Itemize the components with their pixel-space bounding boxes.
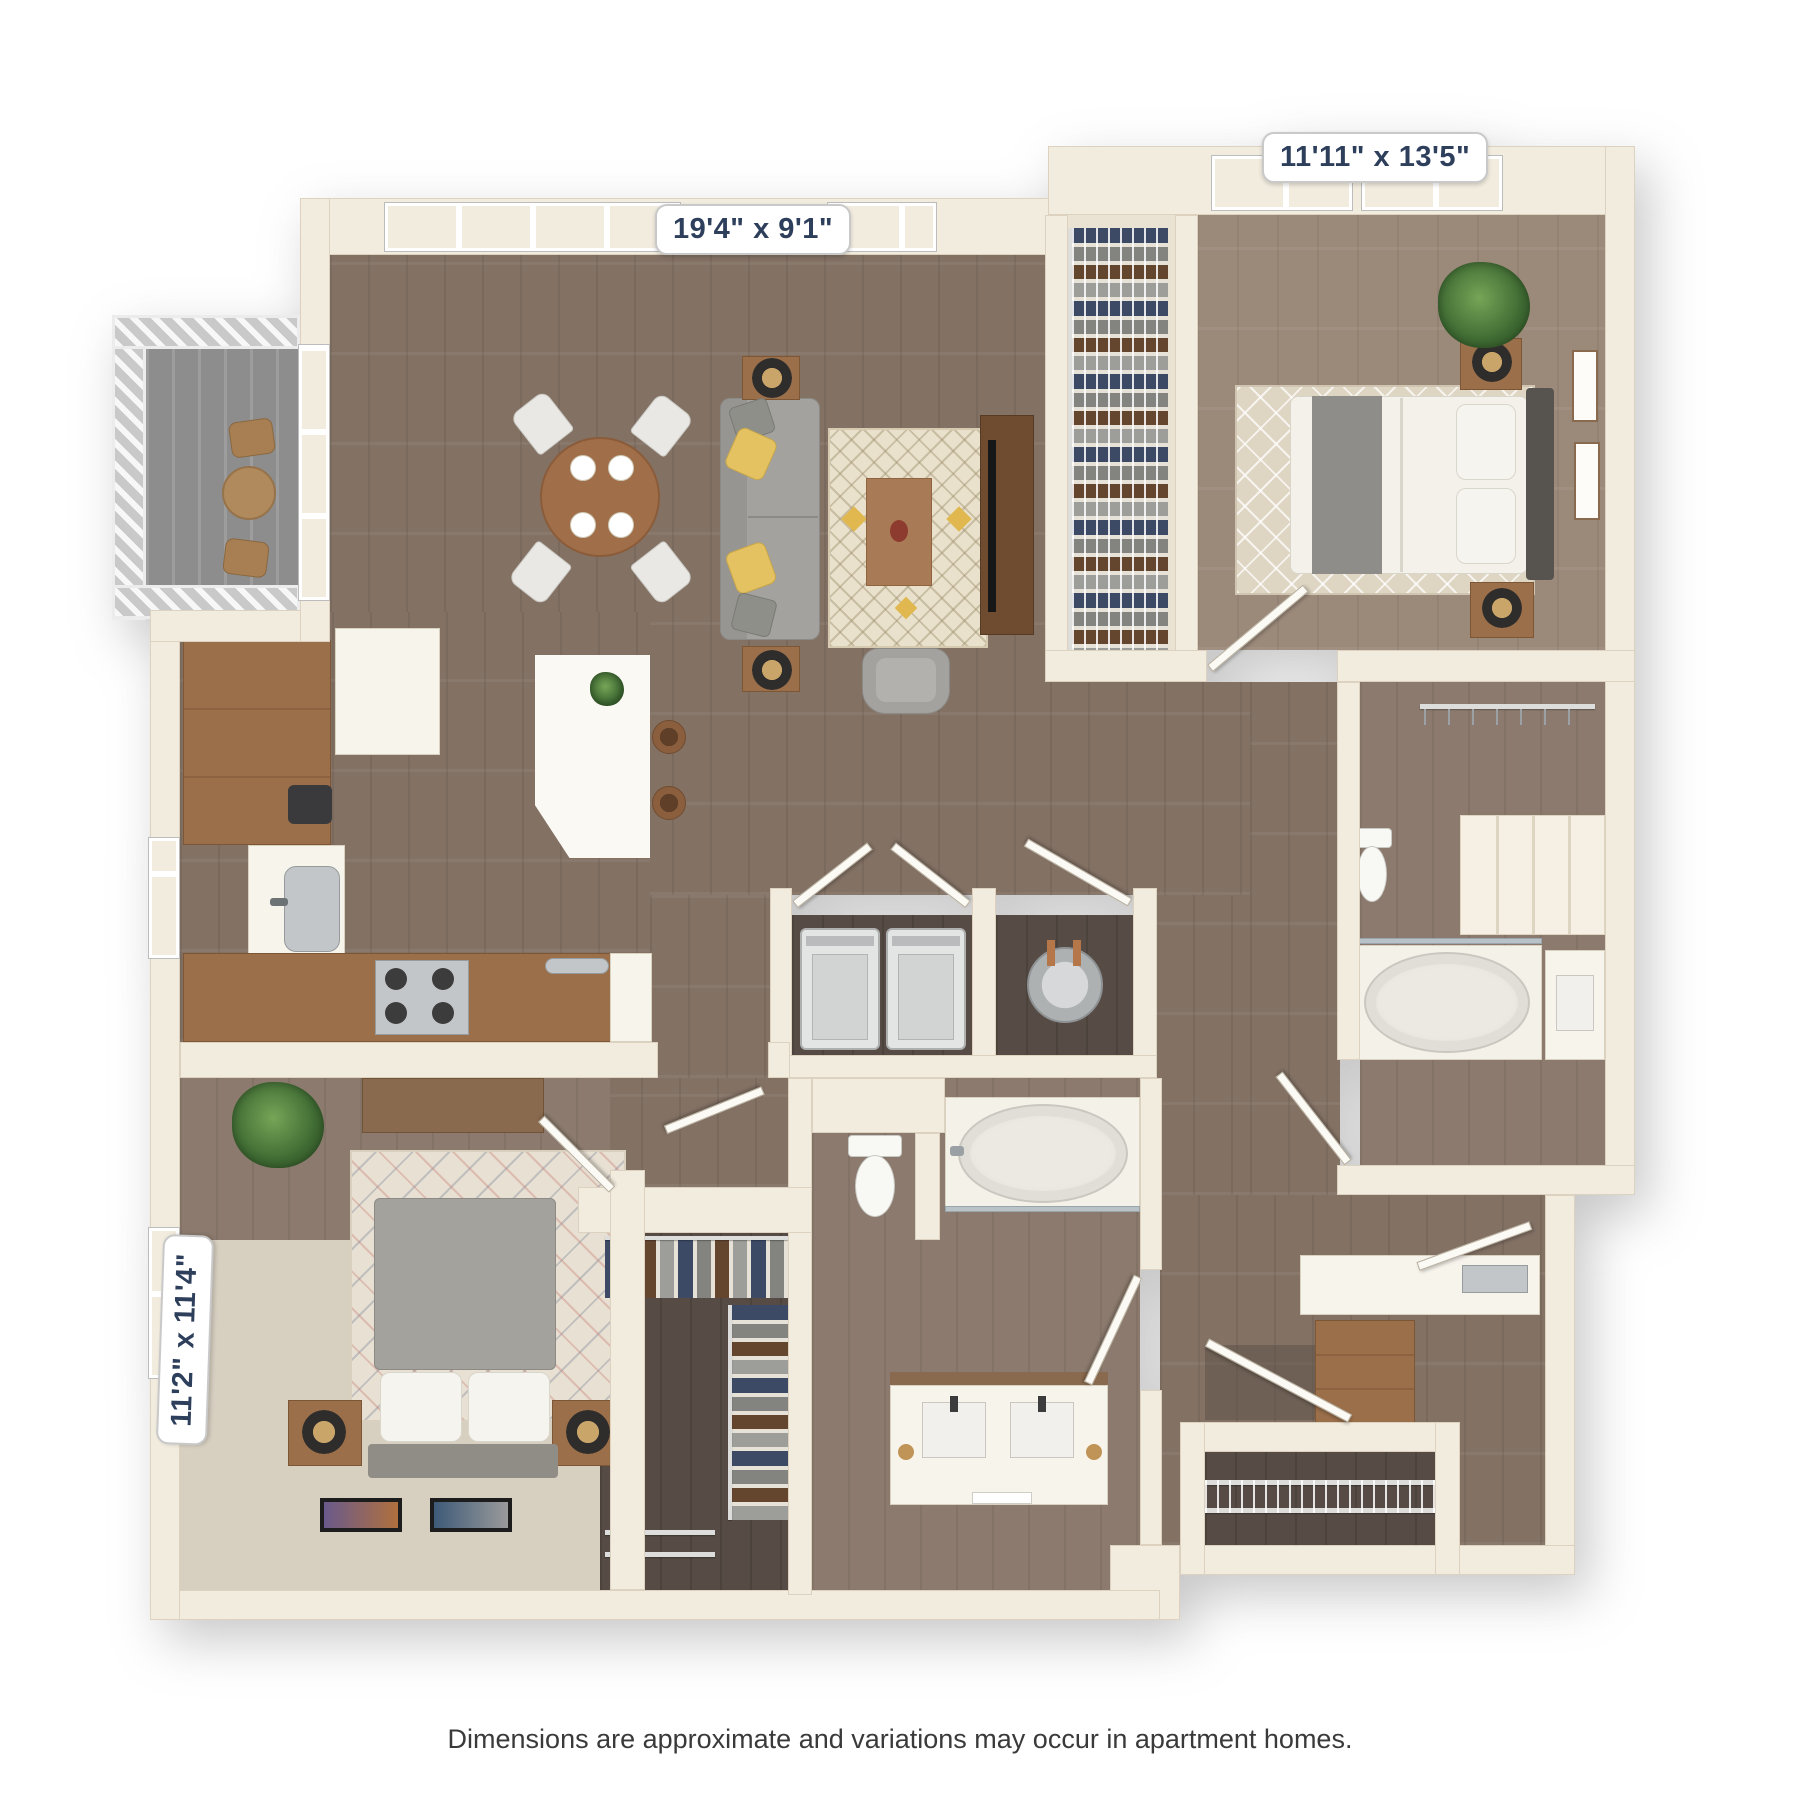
balcony-table (222, 466, 276, 520)
dimension-text: 11'2" x 11'4" (165, 1253, 204, 1428)
bed-pillow (1456, 404, 1516, 480)
shower-glass (945, 1206, 1140, 1212)
vanity-sconce (898, 1444, 914, 1460)
balcony-chair (222, 537, 270, 578)
washer-panel (806, 936, 874, 946)
window (299, 345, 329, 600)
bar-stool (652, 720, 686, 754)
cabinet-line (183, 708, 331, 710)
bed-pillow (380, 1372, 462, 1442)
water-heater (1027, 947, 1103, 1023)
hallway-corridor (1250, 682, 1340, 1195)
wall (180, 1042, 658, 1078)
floor-plan: 19'4" x 9'1" 11'11" x 13'5" 11'2" x 11'4… (0, 0, 1800, 1800)
stove-burner (432, 1002, 454, 1024)
wall (1180, 1422, 1460, 1452)
wire-shelf-texture (1205, 1480, 1435, 1513)
wall (1045, 215, 1068, 682)
toilet (1357, 846, 1387, 902)
wall (150, 610, 180, 1620)
water-heater-pipe (1073, 940, 1081, 966)
table-lamp (566, 1410, 610, 1454)
window (385, 203, 680, 251)
kitchen-counter (335, 628, 440, 755)
balcony-chair (228, 417, 277, 459)
balcony (146, 349, 300, 585)
balcony-railing (112, 315, 146, 620)
wall-art (320, 1498, 402, 1532)
headboard (1526, 388, 1554, 580)
shower-glass (1352, 938, 1542, 944)
wall (150, 610, 302, 642)
wall (788, 1078, 812, 1595)
wall (1337, 682, 1360, 1060)
kitchen-sink (284, 866, 340, 952)
wall-art (1572, 350, 1598, 422)
tv (988, 440, 996, 612)
dining-plate (570, 512, 596, 538)
wall-art (430, 1498, 512, 1532)
dryer-lid (898, 954, 954, 1040)
kitchen-counter-end (610, 953, 652, 1042)
dining-table (540, 437, 660, 557)
bed-fold (1400, 398, 1403, 572)
coffee-maker (288, 785, 332, 824)
water-heater-pipe (1047, 940, 1055, 966)
dimension-text: 19'4" x 9'1" (673, 213, 833, 246)
hanging-clothes (732, 1305, 788, 1520)
stove-burner (385, 968, 407, 990)
plant (232, 1082, 324, 1168)
window (149, 838, 179, 958)
vanity-shelf (890, 1372, 1108, 1385)
wall (1180, 1422, 1205, 1575)
toilet-tank (848, 1135, 902, 1157)
wall (150, 1590, 1160, 1620)
plant (1438, 262, 1530, 348)
island-plant (590, 672, 624, 706)
wall (1045, 650, 1207, 682)
bed-pillow (468, 1372, 550, 1442)
wall (972, 888, 996, 1078)
wall-art (1574, 442, 1600, 520)
vanity-sink (1556, 975, 1594, 1031)
dresser (362, 1078, 544, 1133)
sink-faucet (1038, 1396, 1046, 1412)
wall (1337, 1165, 1635, 1195)
counter-rail (545, 958, 609, 974)
dining-plate (570, 455, 596, 481)
wall (1435, 1422, 1460, 1575)
armchair-cushion (876, 658, 936, 702)
shelf-divider (1532, 815, 1535, 935)
sink-faucet (270, 898, 288, 906)
wall (770, 1055, 1157, 1078)
table-lamp (1472, 342, 1512, 382)
wall (768, 1042, 790, 1078)
wall (610, 1170, 645, 1590)
sofa-cushion-line (748, 516, 818, 518)
bed-throw (1312, 396, 1382, 574)
table-lamp (752, 650, 792, 690)
dryer-panel (892, 936, 960, 946)
toilet (855, 1155, 895, 1217)
wall (1545, 1195, 1575, 1575)
vanity-tray (972, 1492, 1032, 1504)
bed-pillow (1456, 488, 1516, 564)
balcony-railing (112, 315, 300, 349)
stove-burner (432, 968, 454, 990)
dimension-label-bedroom-primary: 11'11" x 13'5" (1262, 132, 1488, 183)
wall (1337, 650, 1635, 682)
wall (915, 1133, 940, 1240)
washer-lid (812, 954, 868, 1040)
cabinet-line (1315, 1388, 1415, 1390)
shelf-divider (1568, 815, 1571, 935)
table-lamp (302, 1410, 346, 1454)
bar-stool (652, 786, 686, 820)
table-lamp (752, 358, 792, 398)
bathtub (1364, 952, 1530, 1053)
wall (1140, 1078, 1162, 1270)
wall (1175, 215, 1198, 682)
wall (1133, 888, 1157, 1078)
bed (374, 1198, 556, 1370)
floor-plan-page: 19'4" x 9'1" 11'11" x 13'5" 11'2" x 11'4… (0, 0, 1800, 1800)
table-lamp (1482, 588, 1522, 628)
closet-rod (728, 1305, 732, 1520)
stove-burner (385, 1002, 407, 1024)
bathtub (958, 1104, 1128, 1203)
wire-shelf (1072, 228, 1168, 668)
hallway-center (1050, 682, 1250, 895)
dimension-label-living: 19'4" x 9'1" (655, 204, 851, 255)
dimension-label-bedroom-secondary: 11'2" x 11'4" (156, 1234, 214, 1445)
laptop (1462, 1265, 1528, 1293)
cabinet-line (183, 776, 331, 778)
sink-faucet (950, 1396, 958, 1412)
disclaimer: Dimensions are approximate and variation… (0, 1724, 1800, 1755)
vanity-sconce (1086, 1444, 1102, 1460)
wall (812, 1078, 945, 1133)
dining-plate (608, 512, 634, 538)
hallway-west (650, 895, 770, 1078)
coffee-table-decor (890, 520, 908, 542)
dining-plate (608, 455, 634, 481)
wall (1140, 1390, 1162, 1545)
cabinet-line (1315, 1354, 1415, 1356)
tub-faucet (950, 1146, 964, 1156)
shelf-divider (1496, 815, 1499, 935)
clothes-hangers (1424, 709, 1591, 725)
headboard (368, 1444, 558, 1478)
dimension-text: 11'11" x 13'5" (1280, 141, 1470, 174)
hallway-east (1155, 895, 1250, 1195)
